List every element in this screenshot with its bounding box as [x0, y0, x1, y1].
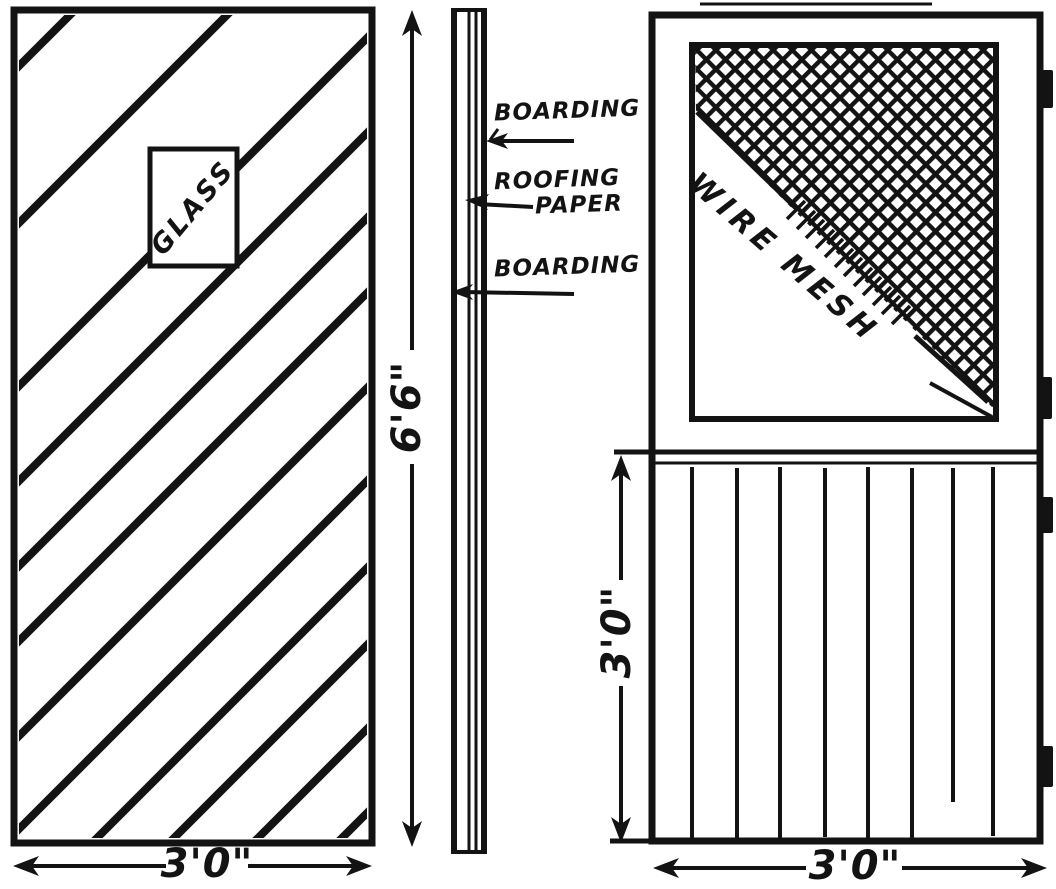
hinge-icon: [1039, 497, 1053, 533]
door-height-dim-label: 6'6": [387, 361, 427, 454]
hinge-icon: [1037, 377, 1052, 419]
hinge-icon: [1039, 746, 1053, 787]
boarding-bottom-arrow: [451, 284, 574, 300]
left-door-outline: [14, 10, 372, 843]
hinge-icon: [1038, 70, 1053, 108]
vertical-board-lines: [692, 467, 993, 839]
roofing-paper-label-line1: ROOFING: [494, 167, 621, 194]
right-door-width-dim-label: 3'0": [809, 846, 902, 886]
door-construction-diagram: GLASS BOARDING ROOFING PAPER BOARDING WI…: [0, 0, 1056, 889]
roofing-paper-label-line2: PAPER: [535, 192, 624, 218]
boarding-top-arrow: [486, 129, 574, 149]
door-section-view: [451, 10, 487, 853]
right-door-elevation: [610, 4, 1053, 841]
door-drawing-linework: [0, 0, 1056, 889]
boarding-top-label: BOARDING: [494, 97, 641, 125]
right-door-lower-height-dim-label: 3'0": [597, 586, 637, 679]
boarding-bottom-label: BOARDING: [494, 253, 641, 281]
left-door-width-dim-label: 3'0": [161, 844, 254, 884]
